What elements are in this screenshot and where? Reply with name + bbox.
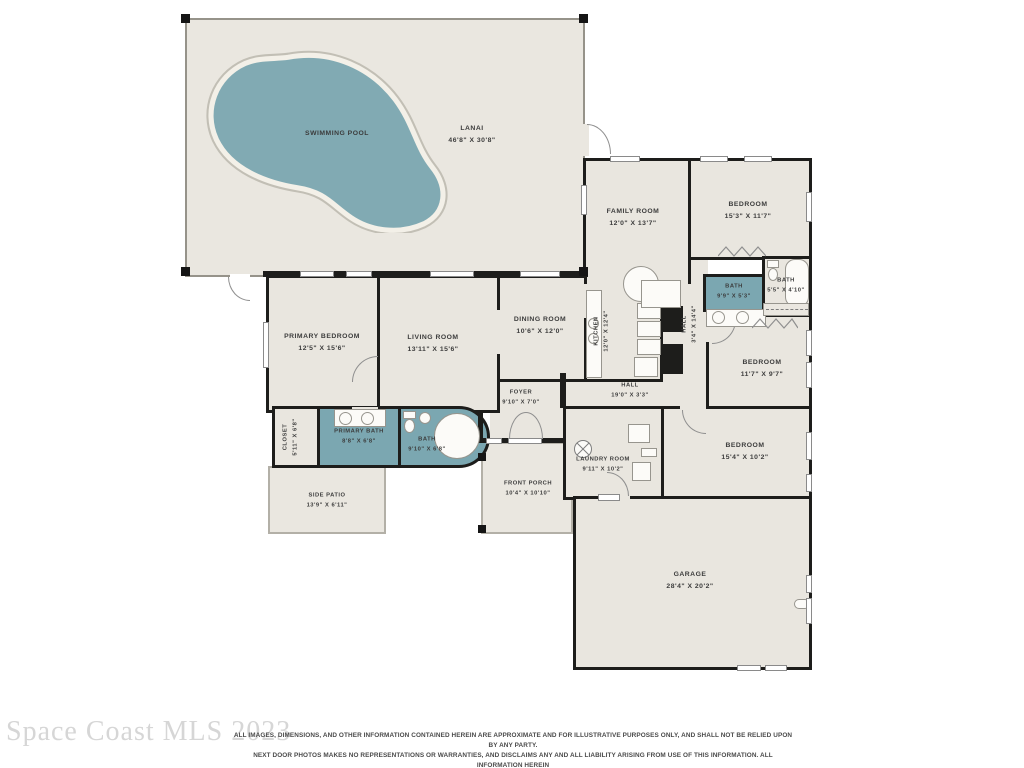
garage-door-opening — [806, 598, 812, 624]
porch-corner-post — [478, 525, 486, 533]
dryer — [632, 462, 651, 481]
label-laundry: LAUNDRY ROOM9'11" X 10'2" — [576, 455, 630, 476]
label-lanai: LANAI46'8" X 30'8" — [448, 123, 495, 147]
toilet-tank — [767, 260, 779, 268]
label-primary-bedroom: PRIMARY BEDROOM12'5" X 15'6" — [284, 331, 360, 355]
door-arc — [587, 124, 611, 154]
bath-sink — [712, 311, 725, 324]
window — [300, 271, 334, 277]
front-door — [508, 438, 542, 444]
lanai-corner-post — [579, 267, 588, 276]
window — [806, 474, 812, 492]
label-bedroom-mid: BEDROOM11'7" X 9'7" — [741, 357, 784, 381]
disclaimer-line-2: NEXT DOOR PHOTOS MAKES NO REPRESENTATION… — [233, 751, 793, 768]
label-kitchen: KITCHEN12'0" X 12'4" — [592, 310, 613, 351]
label-garage: GARAGE28'4" X 20'2" — [666, 569, 713, 593]
hall-block-wall — [661, 344, 683, 374]
window — [806, 330, 812, 356]
disclaimer-line-1: ALL IMAGES, DIMENSIONS, AND OTHER INFORM… — [233, 731, 793, 751]
label-family-room: FAMILY ROOM12'0" X 13'7" — [607, 206, 660, 230]
foyer-side-wall — [560, 373, 566, 408]
bath-sink — [361, 412, 374, 425]
bath-sink — [339, 412, 352, 425]
label-swimming-pool: SWIMMING POOL — [305, 128, 369, 140]
kitchen-island — [634, 357, 658, 377]
disclaimer-text: ALL IMAGES, DIMENSIONS, AND OTHER INFORM… — [233, 731, 793, 768]
lanai-corner-post — [181, 14, 190, 23]
label-front-porch: FRONT PORCH10'4" X 10'10" — [504, 479, 552, 500]
window — [610, 156, 640, 162]
window — [806, 362, 812, 388]
window — [744, 156, 772, 162]
bath-sink — [736, 311, 749, 324]
label-bath-small: BATH5'5" X 4'10" — [767, 276, 804, 297]
kitchen-bar-counter — [641, 280, 681, 308]
label-bath-curved: BATH9'10" X 6'8" — [408, 435, 445, 456]
garage-side-door — [598, 494, 620, 501]
lanai-corner-post — [181, 267, 190, 276]
label-living-room: LIVING ROOM13'11" X 15'6" — [407, 332, 458, 356]
label-primary-bath: PRIMARY BATH8'8" X 6'8" — [334, 427, 384, 448]
window — [806, 432, 812, 460]
bath-sink — [419, 412, 431, 424]
window — [700, 156, 728, 162]
label-hall-vertical: HALL3'4" X 14'4" — [680, 305, 701, 342]
window — [765, 665, 787, 671]
closet-bifold-door — [718, 246, 766, 258]
closet-rod — [766, 309, 808, 310]
door-arc — [228, 277, 250, 301]
label-bedroom-top: BEDROOM15'3" X 11'7" — [725, 199, 772, 223]
kitchen-shelf — [637, 321, 661, 337]
swimming-pool-shape — [197, 48, 467, 233]
floor-plan: SWIMMING POOL LANAI46'8" X 30'8" FAMILY … — [0, 0, 1024, 768]
window — [520, 271, 560, 277]
door-opening — [495, 310, 503, 354]
window — [430, 271, 474, 277]
toilet-tank — [403, 411, 416, 419]
label-dining-room: DINING ROOM10'6" X 12'0" — [514, 314, 566, 338]
label-bath-hall: BATH9'9" X 5'3" — [717, 282, 751, 303]
window — [486, 438, 502, 444]
label-bedroom-low: BEDROOM15'4" X 10'2" — [721, 440, 768, 464]
window — [806, 192, 812, 222]
porch-corner-post — [478, 453, 486, 461]
toilet-bowl — [404, 419, 415, 433]
closet-bifold-door — [752, 318, 798, 330]
washer — [628, 424, 650, 443]
label-closet: CLOSET5'11" X 6'8" — [281, 418, 302, 455]
window — [737, 665, 761, 671]
lanai-corner-post — [579, 14, 588, 23]
window — [346, 271, 372, 277]
laundry-sink — [641, 448, 657, 457]
window — [263, 322, 269, 368]
window — [581, 185, 587, 215]
kitchen-shelf — [637, 339, 661, 355]
label-hall-horizontal: HALL19'0" X 3'3" — [611, 381, 648, 402]
window — [806, 575, 812, 593]
label-foyer: FOYER9'10" X 7'0" — [502, 388, 539, 409]
label-side-patio: SIDE PATIO13'9" X 6'11" — [307, 491, 348, 512]
